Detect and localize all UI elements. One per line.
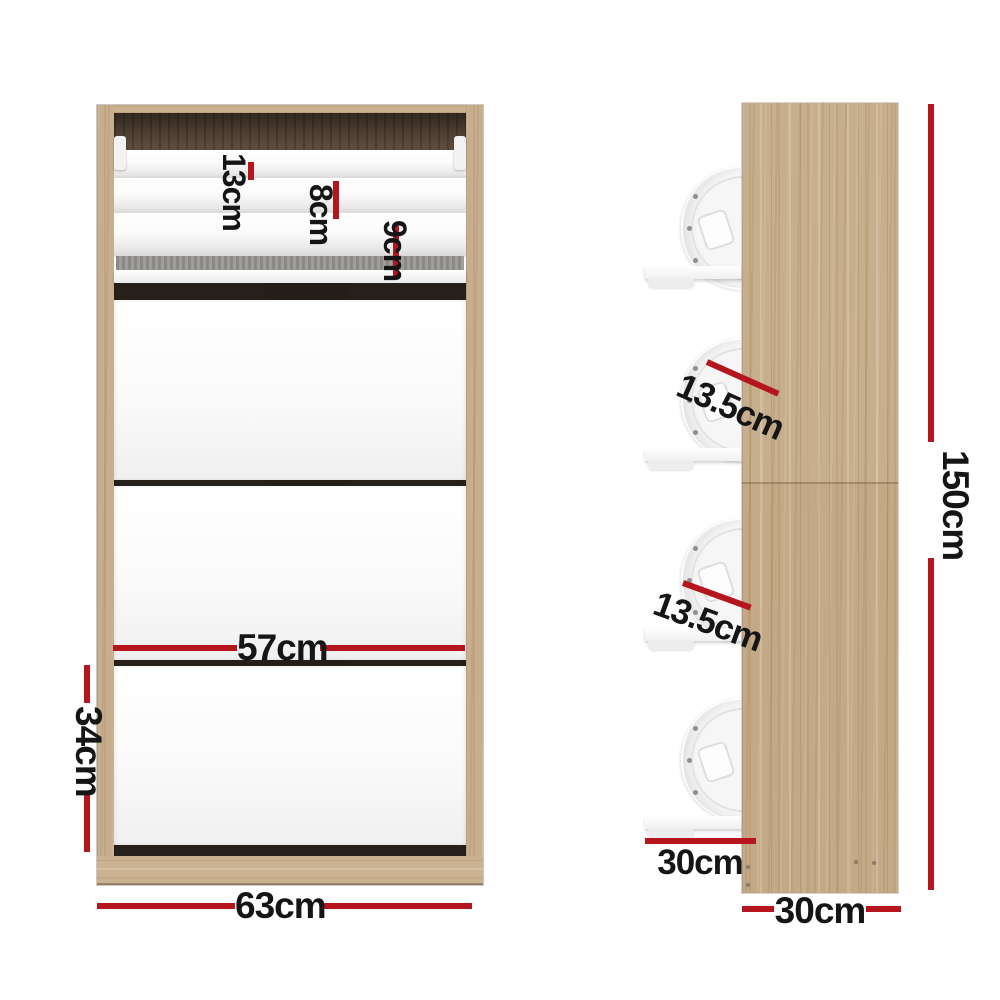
side-rack-tier-4 (681, 698, 743, 822)
flip-hinge-left (114, 136, 126, 170)
dimension-line-57cm-right (320, 645, 465, 651)
label-overall-width: 63cm (235, 887, 322, 924)
dimension-line-63cm-left (97, 903, 235, 909)
side-rack-shelf-2 (645, 448, 743, 461)
dimension-line-34cm-bottom (84, 793, 90, 852)
flip-compartment-open (114, 150, 466, 283)
screw-dot (854, 860, 858, 864)
dimension-line-150cm-bottom (928, 558, 934, 890)
side-rack-shelf-2-bracket (648, 461, 694, 470)
flip-shelf-slat-1 (114, 150, 466, 178)
cabinet-right-panel (466, 105, 483, 885)
flip-hinge-right (454, 136, 466, 170)
front-view-cabinet (97, 105, 483, 885)
label-flip-tier-bottom: 9cm (379, 220, 411, 281)
cabinet-base-board (97, 856, 483, 885)
label-overall-height: 150cm (937, 450, 974, 560)
side-rack-shelf-4 (645, 816, 743, 829)
dimension-diagram: 13cm 8cm 9cm 57cm 34cm 63cm (0, 0, 1000, 1000)
base-shadow-strip (114, 845, 466, 856)
drawer-1 (114, 300, 466, 480)
side-rack-shelf-1-bracket (648, 279, 694, 288)
side-rack-shelf-1 (645, 266, 743, 279)
flip-shelf-slat-3 (114, 213, 466, 256)
dimension-line-30cm-depth-left (742, 906, 774, 912)
label-shelf-depth: 30cm (652, 845, 748, 880)
label-flip-tier-top: 13cm (218, 153, 250, 231)
label-drawer-height: 34cm (70, 706, 107, 797)
label-overall-depth: 30cm (774, 892, 866, 929)
drawer-3 (114, 666, 466, 845)
dimension-line-34cm-top (84, 665, 90, 703)
dimension-line-63cm-right (322, 903, 472, 909)
flip-door-front-edge (114, 270, 466, 283)
panel-lower-shade (742, 482, 898, 893)
cabinet-top-panel (97, 105, 483, 113)
side-rack-shelf-4-bracket (648, 829, 694, 838)
label-flip-tier-mid: 8cm (305, 184, 337, 245)
dimension-line-57cm-left (113, 645, 237, 651)
screw-dot (746, 883, 750, 887)
label-inner-width: 57cm (237, 629, 320, 666)
dimension-line-150cm-top (928, 104, 934, 442)
side-rack-shelf-3-bracket (648, 641, 694, 650)
screw-dot (872, 861, 876, 865)
dimension-line-30cm-depth-right (866, 906, 901, 912)
cabinet-interior (114, 113, 466, 856)
flip-shelf-slat-2 (114, 178, 466, 213)
side-view-panel (742, 103, 898, 893)
